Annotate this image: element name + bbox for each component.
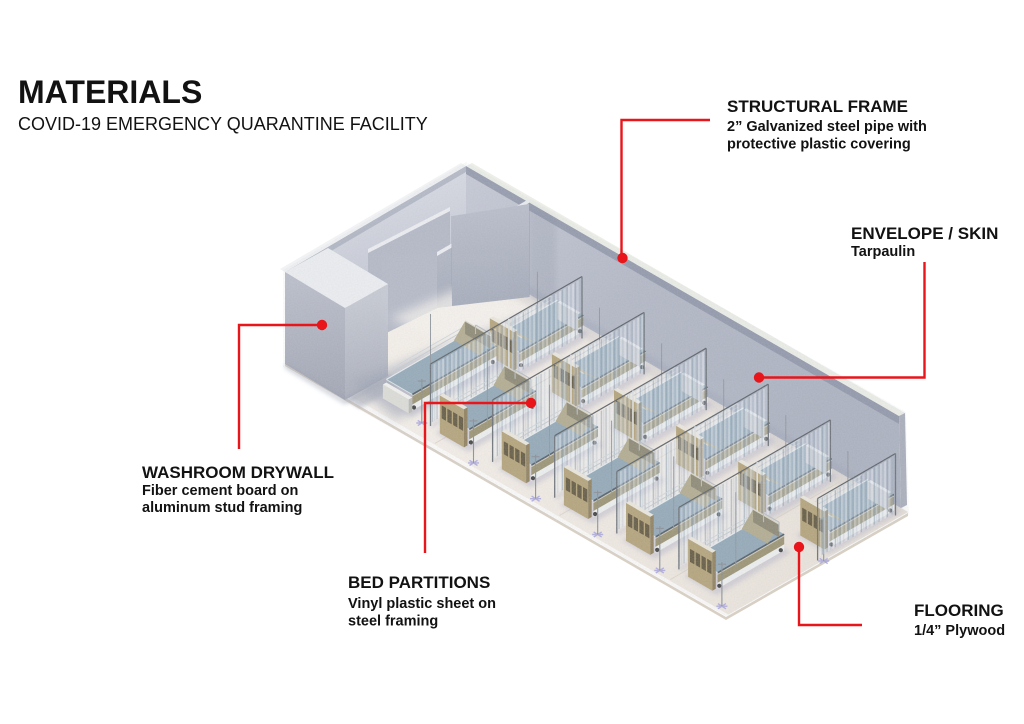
svg-text:2” Galvanized steel pipe with: 2” Galvanized steel pipe with	[727, 119, 927, 135]
svg-text:Fiber cement board on: Fiber cement board on	[142, 483, 298, 499]
svg-text:BED PARTITIONS: BED PARTITIONS	[348, 573, 490, 592]
svg-text:aluminum stud framing: aluminum stud framing	[142, 500, 302, 516]
svg-text:1/4” Plywood: 1/4” Plywood	[914, 623, 1005, 639]
svg-text:Vinyl plastic sheet on: Vinyl plastic sheet on	[348, 596, 496, 612]
svg-text:Tarpaulin: Tarpaulin	[851, 244, 915, 260]
svg-text:WASHROOM DRYWALL: WASHROOM DRYWALL	[142, 463, 334, 482]
svg-text:MATERIALS: MATERIALS	[18, 74, 202, 110]
svg-text:ENVELOPE / SKIN: ENVELOPE / SKIN	[851, 224, 998, 243]
svg-text:steel framing: steel framing	[348, 614, 438, 630]
svg-text:STRUCTURAL FRAME: STRUCTURAL FRAME	[727, 97, 908, 116]
svg-text:protective plastic covering: protective plastic covering	[727, 137, 911, 153]
svg-text:FLOORING: FLOORING	[914, 601, 1004, 620]
svg-text:COVID-19 EMERGENCY QUARANTINE: COVID-19 EMERGENCY QUARANTINE FACILITY	[18, 114, 428, 134]
